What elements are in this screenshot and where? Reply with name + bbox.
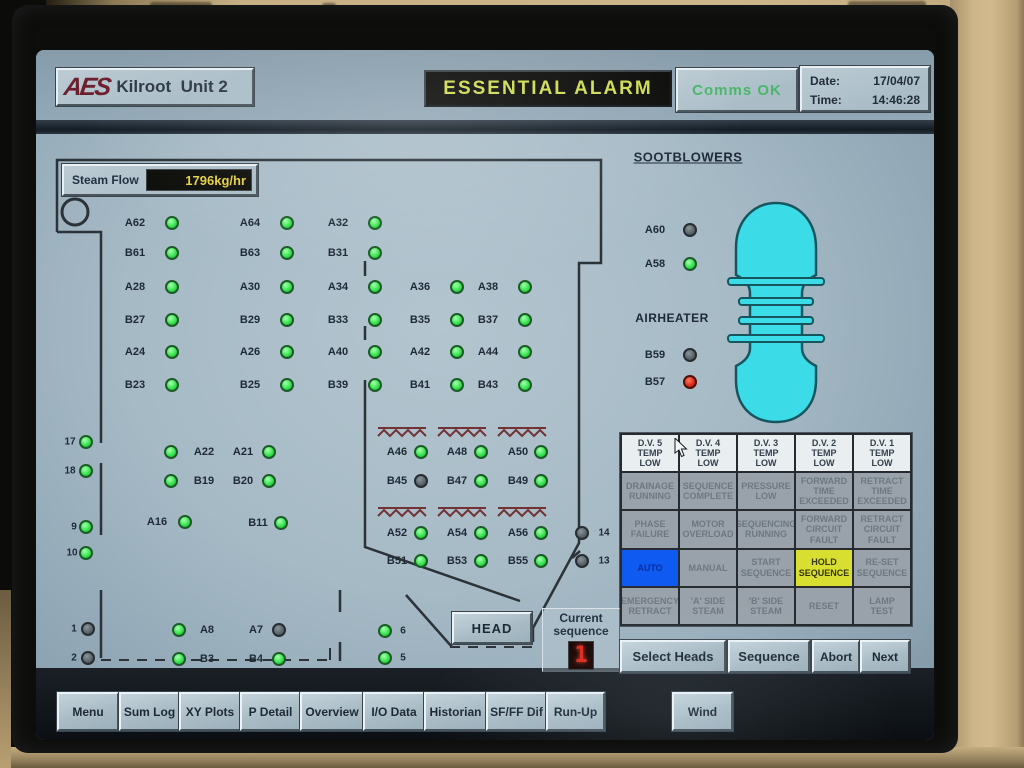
matrix-cell-re-set-sequence[interactable]: RE-SET SEQUENCE bbox=[854, 550, 910, 586]
led-B33 bbox=[368, 313, 382, 327]
label-A24: A24 bbox=[125, 346, 145, 358]
label-2: 2 bbox=[71, 653, 77, 664]
label-9: 9 bbox=[71, 522, 77, 533]
label-B49: B49 bbox=[508, 475, 528, 487]
label-10: 10 bbox=[66, 548, 77, 559]
monitor-case-left bbox=[0, 590, 11, 768]
led-B51 bbox=[414, 554, 428, 568]
label-A64: A64 bbox=[240, 217, 260, 229]
label-18: 18 bbox=[64, 466, 75, 477]
led-A24 bbox=[165, 345, 179, 359]
matrix-cell-dv4-temp-low[interactable]: D.V. 4 TEMP LOW bbox=[680, 435, 736, 471]
label-B3: B3 bbox=[200, 653, 214, 665]
led-B57 bbox=[683, 375, 697, 389]
label-A34: A34 bbox=[328, 281, 348, 293]
led-A52 bbox=[414, 526, 428, 540]
led-B41 bbox=[450, 378, 464, 392]
led-A44 bbox=[518, 345, 532, 359]
label-17: 17 bbox=[64, 437, 75, 448]
label-A22: A22 bbox=[194, 446, 214, 458]
led-A38 bbox=[518, 280, 532, 294]
matrix-cell-dv5-temp-low[interactable]: D.V. 5 TEMP LOW bbox=[622, 435, 678, 471]
led-A36 bbox=[450, 280, 464, 294]
matrix-cell-motor-overload[interactable]: MOTOR OVERLOAD bbox=[680, 511, 736, 547]
current-sequence-value: 1 bbox=[568, 641, 594, 670]
label-5: 5 bbox=[400, 653, 406, 664]
alarm-matrix: D.V. 5 TEMP LOWD.V. 4 TEMP LOWD.V. 3 TEM… bbox=[620, 433, 912, 626]
toolbar-button-sf-ff-dif[interactable]: SF/FF Dif bbox=[486, 692, 547, 731]
led-A26 bbox=[280, 345, 294, 359]
led-B37 bbox=[518, 313, 532, 327]
label-B53: B53 bbox=[447, 555, 467, 567]
label-B35: B35 bbox=[410, 314, 430, 326]
matrix-cell-aside-steam[interactable]: 'A' SIDE STEAM bbox=[680, 588, 736, 624]
toolbar-button-sum-log[interactable]: Sum Log bbox=[119, 692, 180, 731]
led-B39 bbox=[368, 378, 382, 392]
monitor-case-right bbox=[950, 0, 1024, 768]
led-A40 bbox=[368, 345, 382, 359]
label-A26: A26 bbox=[240, 346, 260, 358]
label-14: 14 bbox=[598, 528, 609, 539]
led-B4 bbox=[272, 652, 286, 666]
led-A8 bbox=[172, 623, 186, 637]
matrix-cell-phase-failure[interactable]: PHASE FAILURE bbox=[622, 511, 678, 547]
led-5 bbox=[378, 651, 392, 665]
label-B63: B63 bbox=[240, 247, 260, 259]
led-A54 bbox=[474, 526, 488, 540]
label-A60: A60 bbox=[645, 224, 665, 236]
led-B27 bbox=[165, 313, 179, 327]
led-A16 bbox=[178, 515, 192, 529]
matrix-cell-forward-circuit-fault[interactable]: FORWARD CIRCUIT FAULT bbox=[796, 511, 852, 547]
matrix-cell-emergency-retract[interactable]: EMERGENCY RETRACT bbox=[622, 588, 678, 624]
label-A46: A46 bbox=[387, 446, 407, 458]
led-1 bbox=[81, 622, 95, 636]
led-B45 bbox=[414, 474, 428, 488]
matrix-cell-sequence-complete[interactable]: SEQUENCE COMPLETE bbox=[680, 473, 736, 509]
led-B59 bbox=[683, 348, 697, 362]
label-A32: A32 bbox=[328, 217, 348, 229]
toolbar-button-run-up[interactable]: Run-Up bbox=[546, 692, 605, 731]
sequence-button[interactable]: Sequence bbox=[728, 640, 810, 673]
led-A64 bbox=[280, 216, 294, 230]
label-6: 6 bbox=[400, 626, 406, 637]
label-A50: A50 bbox=[508, 446, 528, 458]
toolbar-button-p-detail[interactable]: P Detail bbox=[240, 692, 301, 731]
led-6 bbox=[378, 624, 392, 638]
label-A38: A38 bbox=[478, 281, 498, 293]
label-A8: A8 bbox=[200, 624, 214, 636]
current-sequence-box: Current sequence 1 bbox=[542, 608, 620, 672]
label-A44: A44 bbox=[478, 346, 498, 358]
label-B57: B57 bbox=[645, 376, 665, 388]
abort-button[interactable]: Abort bbox=[812, 640, 860, 673]
matrix-cell-retract-time-exceeded[interactable]: RETRACT TIME EXCEEDED bbox=[854, 473, 910, 509]
label-A16: A16 bbox=[147, 516, 167, 528]
label-A30: A30 bbox=[240, 281, 260, 293]
led-A46 bbox=[414, 445, 428, 459]
led-9 bbox=[79, 520, 93, 534]
label-A7: A7 bbox=[249, 624, 263, 636]
label-B23: B23 bbox=[125, 379, 145, 391]
label-B39: B39 bbox=[328, 379, 348, 391]
led-B20 bbox=[262, 474, 276, 488]
label-A48: A48 bbox=[447, 446, 467, 458]
toolbar-button-overview[interactable]: Overview bbox=[300, 692, 364, 731]
label-B25: B25 bbox=[240, 379, 260, 391]
matrix-cell-forward-time-exceeded[interactable]: FORWARD TIME EXCEEDED bbox=[796, 473, 852, 509]
led-B61 bbox=[165, 246, 179, 260]
label-B47: B47 bbox=[447, 475, 467, 487]
led-A21 bbox=[262, 445, 276, 459]
head-button[interactable]: HEAD bbox=[452, 612, 532, 644]
hmi-screen: AES Kilroot Unit 2 ESSENTIAL ALARM Comms… bbox=[36, 50, 934, 740]
matrix-cell-pressure-low[interactable]: PRESSURE LOW bbox=[738, 473, 794, 509]
label-13: 13 bbox=[598, 556, 609, 567]
matrix-cell-start-sequence[interactable]: START SEQUENCE bbox=[738, 550, 794, 586]
led-A60 bbox=[683, 223, 697, 237]
label-B41: B41 bbox=[410, 379, 430, 391]
label-A62: A62 bbox=[125, 217, 145, 229]
label-B20: B20 bbox=[233, 475, 253, 487]
led-A50 bbox=[534, 445, 548, 459]
label-A58: A58 bbox=[645, 258, 665, 270]
label-B61: B61 bbox=[125, 247, 145, 259]
matrix-cell-sequencing-running[interactable]: SEQUENCING RUNNING bbox=[738, 511, 794, 547]
label-B27: B27 bbox=[125, 314, 145, 326]
led-14 bbox=[575, 526, 589, 540]
label-B29: B29 bbox=[240, 314, 260, 326]
led-B31 bbox=[368, 246, 382, 260]
led-10 bbox=[79, 546, 93, 560]
led-B19 bbox=[164, 474, 178, 488]
led-A56 bbox=[534, 526, 548, 540]
label-B19: B19 bbox=[194, 475, 214, 487]
current-sequence-label: Current sequence bbox=[543, 612, 619, 638]
matrix-cell-hold-sequence[interactable]: HOLD SEQUENCE bbox=[796, 550, 852, 586]
label-B55: B55 bbox=[508, 555, 528, 567]
label-A28: A28 bbox=[125, 281, 145, 293]
led-A22 bbox=[164, 445, 178, 459]
led-17 bbox=[79, 435, 93, 449]
label-B59: B59 bbox=[645, 349, 665, 361]
led-18 bbox=[79, 464, 93, 478]
led-2 bbox=[81, 651, 95, 665]
monitor-photo: AES Kilroot Unit 2 ESSENTIAL ALARM Comms… bbox=[0, 0, 1024, 768]
label-A40: A40 bbox=[328, 346, 348, 358]
led-A28 bbox=[165, 280, 179, 294]
led-A30 bbox=[280, 280, 294, 294]
led-B11 bbox=[274, 516, 288, 530]
led-B47 bbox=[474, 474, 488, 488]
led-B43 bbox=[518, 378, 532, 392]
led-A62 bbox=[165, 216, 179, 230]
label-A21: A21 bbox=[233, 446, 253, 458]
led-A34 bbox=[368, 280, 382, 294]
led-B23 bbox=[165, 378, 179, 392]
led-A48 bbox=[474, 445, 488, 459]
matrix-cell-bside-steam[interactable]: 'B' SIDE STEAM bbox=[738, 588, 794, 624]
matrix-cell-manual[interactable]: MANUAL bbox=[680, 550, 736, 586]
led-A32 bbox=[368, 216, 382, 230]
toolbar-button-historian[interactable]: Historian bbox=[424, 692, 487, 731]
label-B51: B51 bbox=[387, 555, 407, 567]
label-1: 1 bbox=[71, 624, 77, 635]
matrix-cell-reset[interactable]: RESET bbox=[796, 588, 852, 624]
matrix-cell-lamp-test[interactable]: LAMP TEST bbox=[854, 588, 910, 624]
led-B53 bbox=[474, 554, 488, 568]
toolbar-button-xy-plots[interactable]: XY Plots bbox=[179, 692, 241, 731]
label-B4: B4 bbox=[249, 653, 263, 665]
toolbar-button-i-o-data[interactable]: I/O Data bbox=[363, 692, 425, 731]
led-B29 bbox=[280, 313, 294, 327]
led-A58 bbox=[683, 257, 697, 271]
label-A42: A42 bbox=[410, 346, 430, 358]
toolbar-button-menu[interactable]: Menu bbox=[57, 692, 119, 731]
led-A42 bbox=[450, 345, 464, 359]
label-B43: B43 bbox=[478, 379, 498, 391]
led-B55 bbox=[534, 554, 548, 568]
led-B63 bbox=[280, 246, 294, 260]
label-A52: A52 bbox=[387, 527, 407, 539]
led-B25 bbox=[280, 378, 294, 392]
label-A56: A56 bbox=[508, 527, 528, 539]
matrix-cell-retract-circuit-fault[interactable]: RETRACT CIRCUIT FAULT bbox=[854, 511, 910, 547]
matrix-cell-auto[interactable]: AUTO bbox=[622, 550, 678, 586]
label-B33: B33 bbox=[328, 314, 348, 326]
matrix-cell-dv1-temp-low[interactable]: D.V. 1 TEMP LOW bbox=[854, 435, 910, 471]
label-B11: B11 bbox=[248, 517, 268, 529]
led-B3 bbox=[172, 652, 186, 666]
next-button[interactable]: Next bbox=[860, 640, 910, 673]
led-B35 bbox=[450, 313, 464, 327]
label-A54: A54 bbox=[447, 527, 467, 539]
matrix-cell-dv3-temp-low[interactable]: D.V. 3 TEMP LOW bbox=[738, 435, 794, 471]
toolbar-button-wind[interactable]: Wind bbox=[672, 692, 733, 731]
label-B45: B45 bbox=[387, 475, 407, 487]
label-A36: A36 bbox=[410, 281, 430, 293]
led-B49 bbox=[534, 474, 548, 488]
matrix-cell-drainage-running[interactable]: DRAINAGE RUNNING bbox=[622, 473, 678, 509]
label-B31: B31 bbox=[328, 247, 348, 259]
led-A7 bbox=[272, 623, 286, 637]
select-heads-button[interactable]: Select Heads bbox=[620, 640, 726, 673]
matrix-cell-dv2-temp-low[interactable]: D.V. 2 TEMP LOW bbox=[796, 435, 852, 471]
led-13 bbox=[575, 554, 589, 568]
label-B37: B37 bbox=[478, 314, 498, 326]
